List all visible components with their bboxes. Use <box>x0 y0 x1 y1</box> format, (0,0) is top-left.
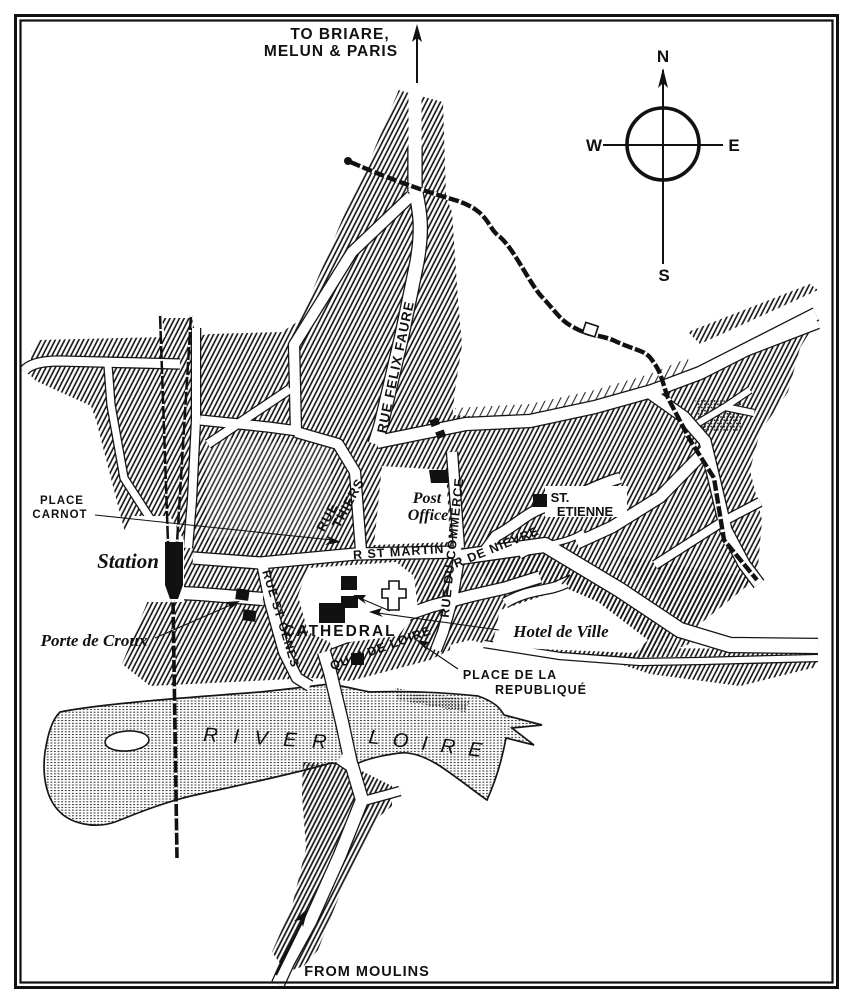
svg-text:CATHEDRAL: CATHEDRAL <box>283 623 396 640</box>
svg-text:Station: Station <box>97 549 159 573</box>
svg-text:MELUN & PARIS: MELUN & PARIS <box>264 43 398 60</box>
svg-text:Post: Post <box>412 490 442 507</box>
svg-text:N: N <box>657 47 669 66</box>
svg-text:CARNOT: CARNOT <box>32 509 87 521</box>
svg-text:Office: Office <box>408 507 449 524</box>
svg-text:W: W <box>586 136 603 155</box>
svg-text:Porte de Croux: Porte de Croux <box>40 631 148 650</box>
svg-text:Hotel de Ville: Hotel de Ville <box>512 622 609 641</box>
svg-text:ETIENNE: ETIENNE <box>557 504 614 519</box>
svg-text:PLACE DE LA: PLACE DE LA <box>463 668 557 682</box>
svg-text:FROM MOULINS: FROM MOULINS <box>304 964 430 980</box>
svg-text:S: S <box>658 266 669 285</box>
svg-text:E: E <box>728 136 739 155</box>
svg-text:PLACE: PLACE <box>40 495 84 507</box>
svg-text:ST.: ST. <box>551 490 570 505</box>
svg-text:REPUBLIQUÉ: REPUBLIQUÉ <box>495 682 587 697</box>
svg-text:TO BRIARE,: TO BRIARE, <box>290 26 389 43</box>
